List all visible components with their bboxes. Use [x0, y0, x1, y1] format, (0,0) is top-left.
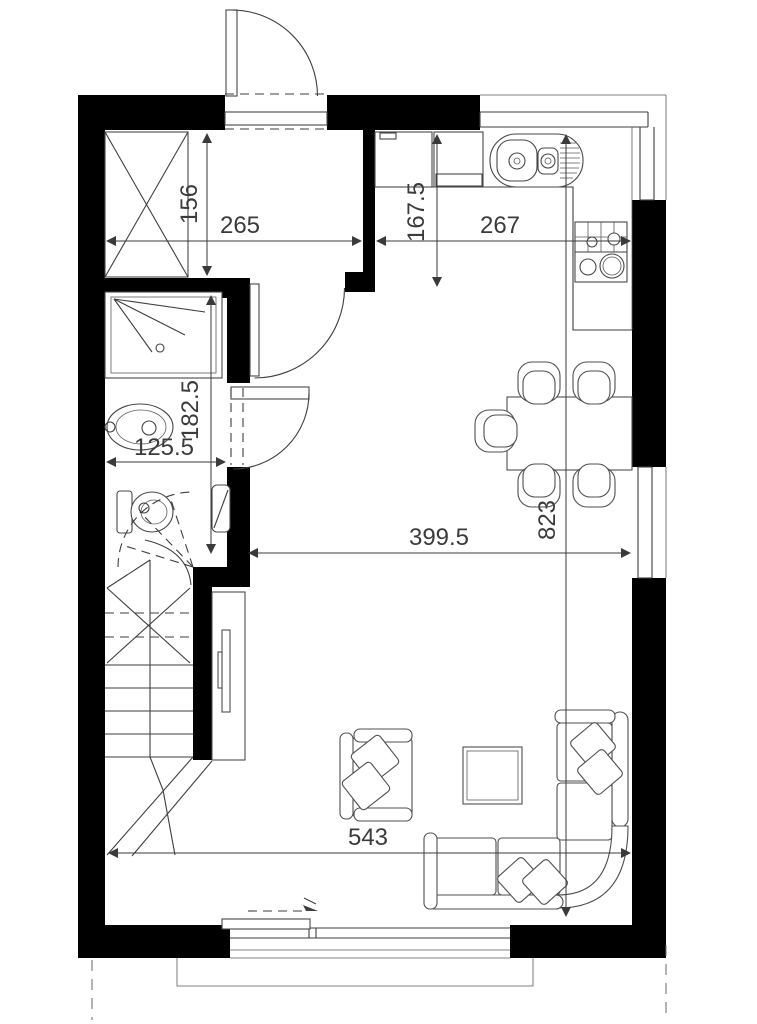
- dim-label-156: 156: [176, 184, 203, 224]
- radiator: [212, 485, 230, 532]
- dim-label-543: 543: [348, 824, 388, 851]
- dimension-living-width: 399.5: [249, 524, 630, 553]
- floor-plan-drawing: 156 265 267 167.5 182.5 125.5 399.5 823 …: [0, 0, 757, 1024]
- dim-label-823: 823: [534, 500, 561, 540]
- entrance-door: [225, 10, 327, 129]
- hall-door: [250, 284, 345, 378]
- shower: [105, 292, 222, 378]
- toilet: [117, 491, 173, 533]
- sliding-direction-arrow: [248, 898, 318, 911]
- dining-chair: [573, 464, 615, 507]
- kitchen-cabinet: [434, 132, 483, 187]
- kitchen-sink: [490, 134, 583, 187]
- dining-chair: [475, 410, 517, 452]
- corner-sofa: [424, 710, 628, 909]
- bathroom-door: [231, 387, 309, 469]
- terrace-window: [222, 919, 510, 958]
- dining-chair: [573, 362, 615, 404]
- dining-table: [507, 397, 632, 470]
- dim-label-167-5: 167.5: [403, 182, 430, 242]
- dim-label-267: 267: [480, 212, 520, 239]
- armchair: [340, 729, 412, 821]
- dim-label-182-5: 182.5: [177, 380, 204, 440]
- tv-cabinet: [212, 592, 245, 760]
- floor-plan: 156 265 267 167.5 182.5 125.5 399.5 823 …: [0, 0, 757, 1024]
- dining-chair: [518, 362, 560, 404]
- dim-label-399-5: 399.5: [409, 524, 469, 551]
- dim-label-125-5: 125.5: [134, 434, 194, 461]
- coffee-table: [463, 747, 522, 804]
- dim-label-265: 265: [220, 212, 260, 239]
- stove: [575, 222, 627, 282]
- side-window: [638, 467, 666, 578]
- balcony: [177, 958, 533, 986]
- fridge: [375, 132, 432, 187]
